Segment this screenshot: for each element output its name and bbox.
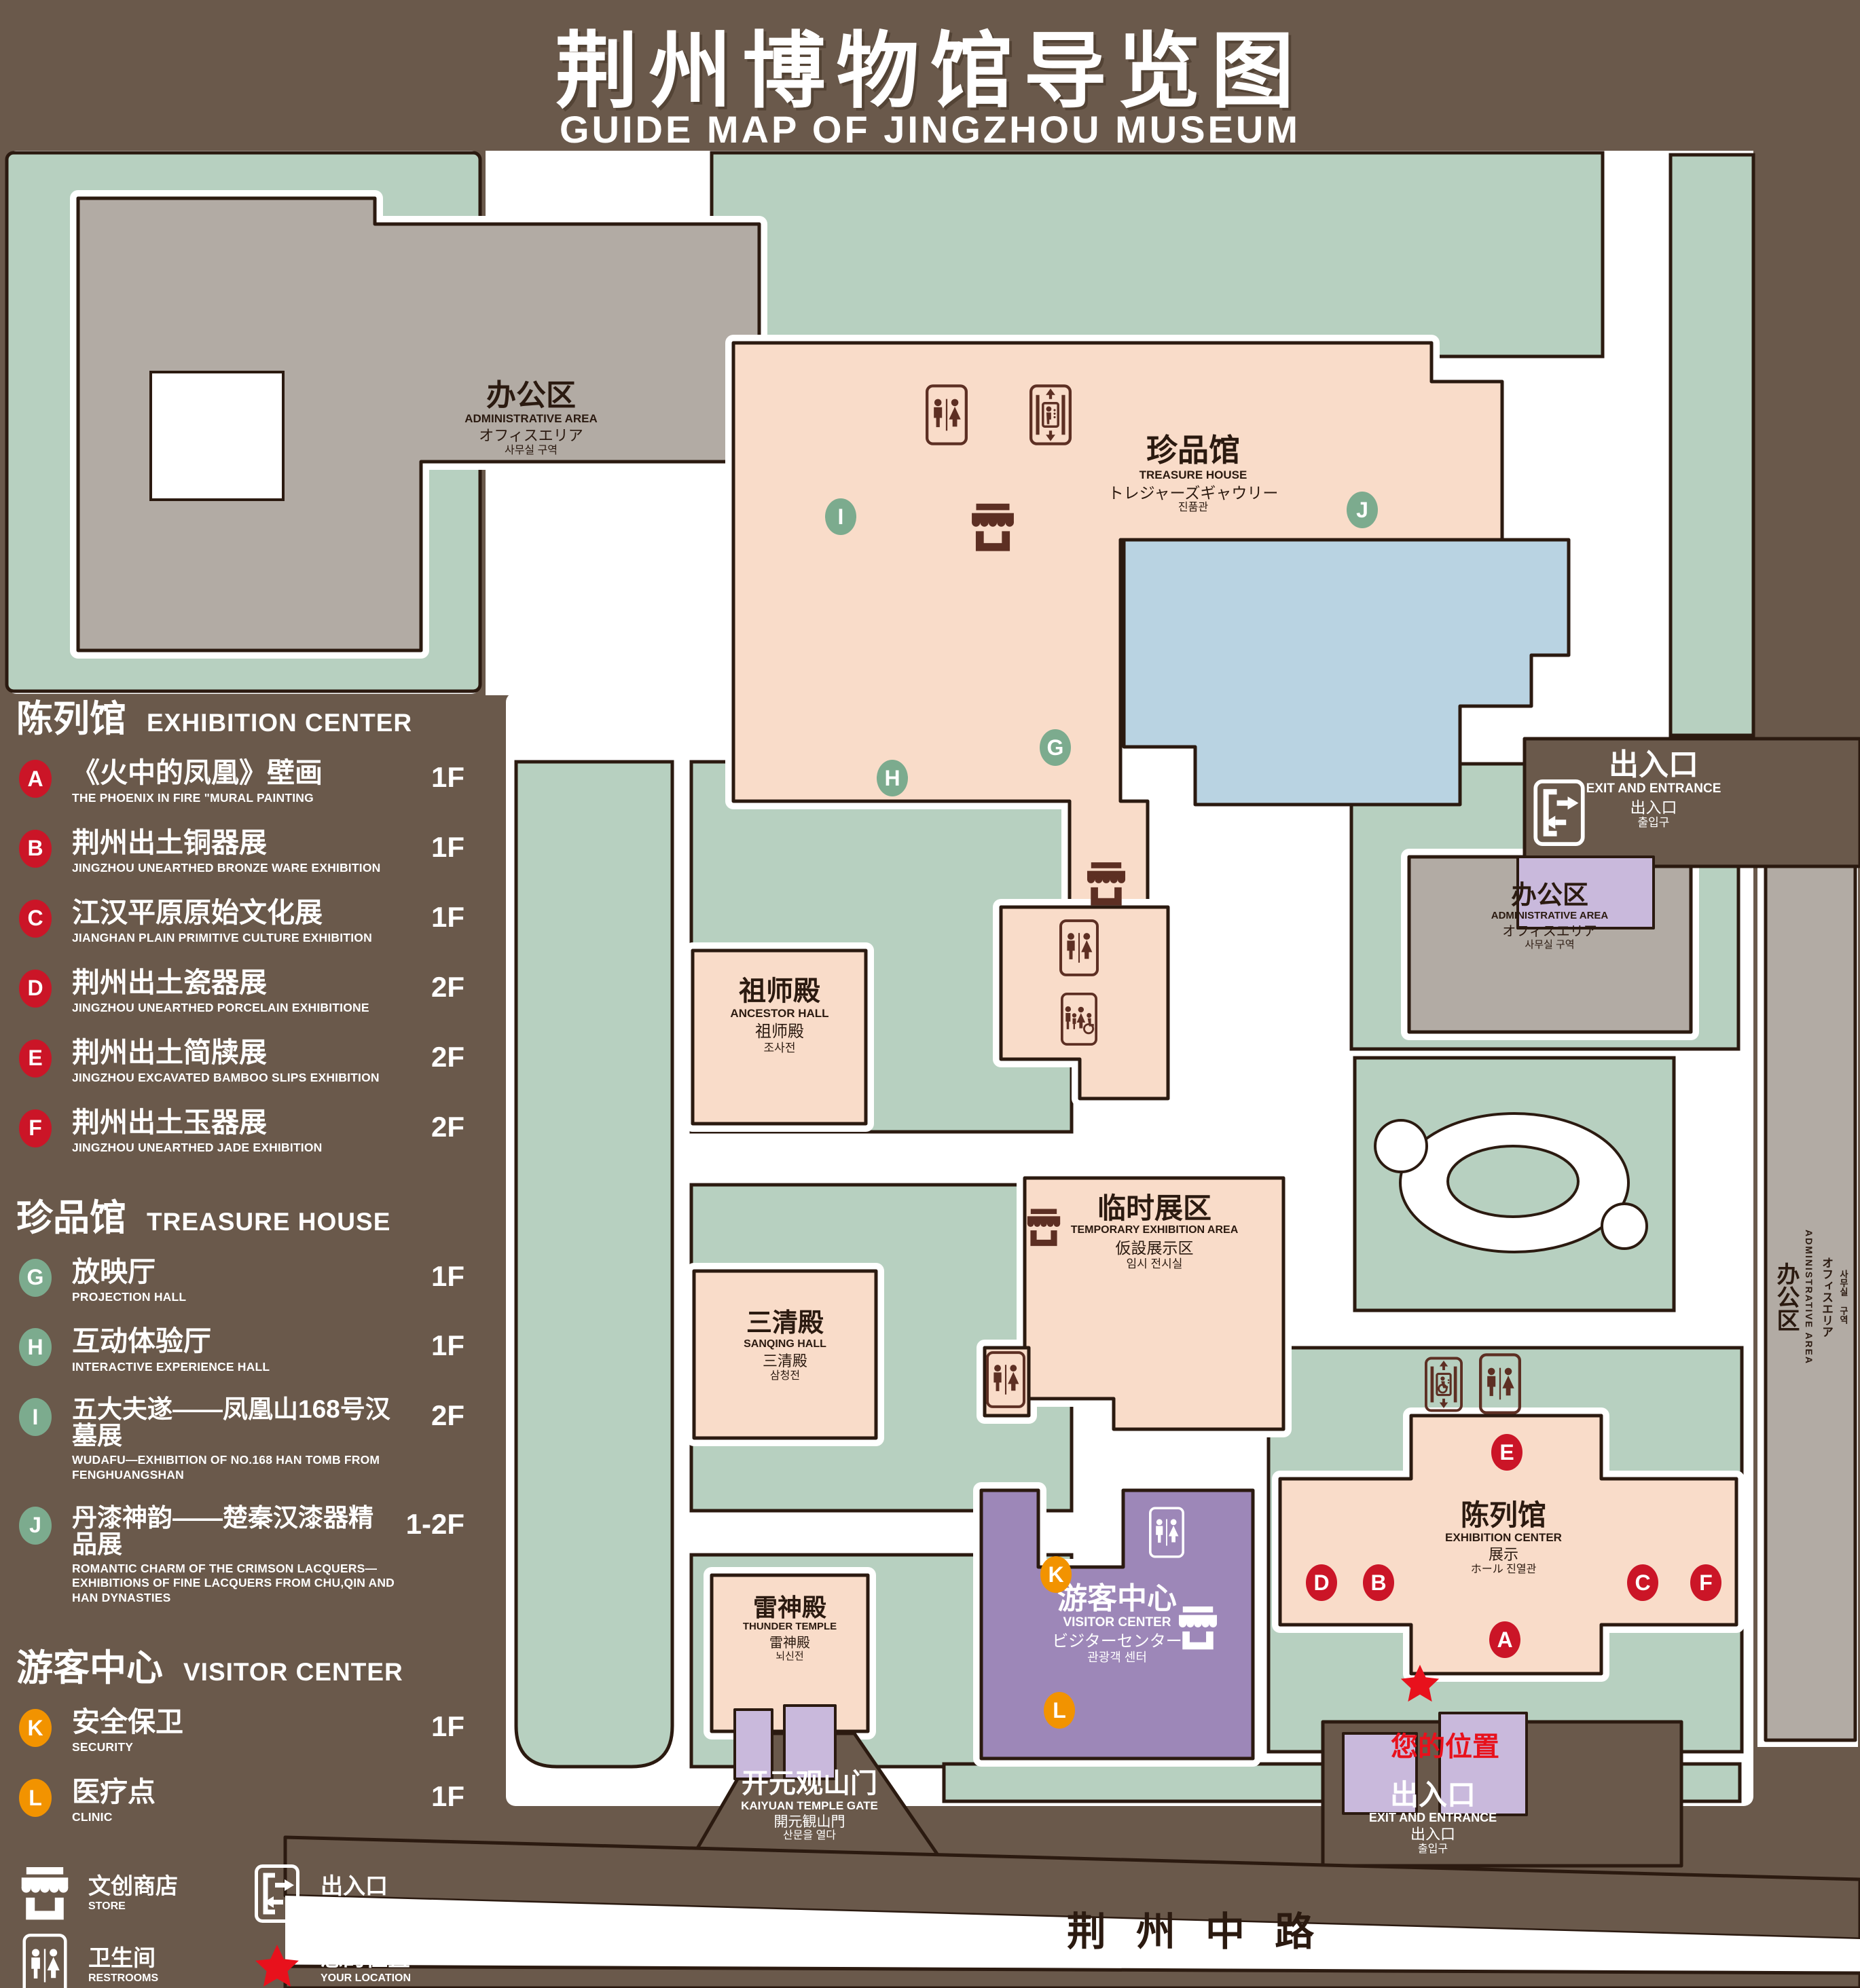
sym-en: STORE xyxy=(88,1900,178,1913)
item-zh: 《火中的凤凰》壁画 xyxy=(72,758,397,788)
legend-exit: 出入口 EXIT AND ENTRANCE xyxy=(249,1865,464,1922)
page-title: 荆州博物馆导览图 xyxy=(0,4,1860,124)
admin-left-label: 办公区 ADMINISTRATIVE AREA オフィスエリア 사무실 구역 xyxy=(464,379,598,457)
map-marker-d: D xyxy=(1306,1564,1337,1601)
item-floor: 2F xyxy=(431,1041,464,1073)
admin-left-courtyard xyxy=(151,372,283,500)
item-floor: 1F xyxy=(431,831,464,864)
item-zh: 荆州出土瓷器展 xyxy=(72,968,397,997)
item-zh: 医疗点 xyxy=(72,1778,397,1807)
central-restroom-icon xyxy=(1059,918,1099,981)
section-title-en: EXHIBITION CENTER xyxy=(147,709,412,737)
section-title-zh: 游客中心 xyxy=(16,1638,163,1691)
lawn-topright-strip xyxy=(1671,155,1753,735)
exhibition-restroom-icon xyxy=(1479,1352,1521,1418)
marker-f: F xyxy=(19,1109,52,1147)
marker-k: K xyxy=(19,1709,52,1747)
legend-store: 文创商店 STORE xyxy=(16,1865,232,1922)
legend-item-l: L 医疗点 CLINIC 1F xyxy=(16,1778,464,1825)
visitor-center-label: 游客中心 VISITOR CENTER ビジターセンター 관광객 센터 xyxy=(1052,1582,1182,1665)
map-marker-l: L xyxy=(1044,1692,1075,1729)
legend-item-i: I 五大夫遂——凤凰山168号汉墓展 WUDAFU—EXHIBITION OF … xyxy=(16,1397,464,1482)
marker-b: B xyxy=(19,830,52,868)
sym-zh: 文创商店 xyxy=(88,1875,178,1898)
legend-restrooms: 卫生间 RESTROOMS xyxy=(16,1937,232,1988)
kaiyuan-gate-label: 开元观山门 KAIYUAN TEMPLE GATE 開元観山門 산문을 열다 xyxy=(741,1769,878,1842)
road-name: 荆 州 中 路 xyxy=(1067,1900,1324,1957)
admin-right-label: 办公区 ADMINISTRATIVE AREA オフィスエリア 사무실 구역 xyxy=(1491,881,1609,951)
treasure-restroom-icon xyxy=(926,384,968,449)
treasure-house-label: 珍品馆 TREASURE HOUSE トレジャーズギャウリー 진품관 xyxy=(1108,433,1279,514)
legend-section-treasure-house: 珍品馆 TREASURE HOUSE xyxy=(16,1188,464,1241)
item-floor: 1F xyxy=(431,1260,464,1293)
item-en: PROJECTION HALL xyxy=(72,1290,397,1305)
map-marker-j: J xyxy=(1347,492,1378,528)
guide-map-poster: 荆州博物馆导览图 GUIDE MAP OF JINGZHOU MUSEUM 陈列… xyxy=(0,0,1860,1988)
sym-zh: 卫生间 xyxy=(88,1947,158,1970)
item-floor: 1F xyxy=(431,1780,464,1813)
map-marker-i: I xyxy=(825,498,856,535)
exhibition-center-label: 陈列馆 EXHIBITION CENTER 展示 ホール 진열관 xyxy=(1445,1499,1562,1576)
lawn-bottom-strip-right xyxy=(1677,1764,1740,1801)
your-location-star-icon xyxy=(1400,1663,1440,1706)
map-marker-f: F xyxy=(1690,1564,1721,1601)
central-family-restroom-icon xyxy=(1061,991,1097,1050)
restroom-icon xyxy=(16,1937,73,1988)
legend-item-e: E 荆州出土简牍展 JINGZHOU EXCAVATED BAMBOO SLIP… xyxy=(16,1038,464,1086)
legend-item-c: C 江汉平原原始文化展 JIANGHAN PLAIN PRIMITIVE CUL… xyxy=(16,898,464,946)
marker-a: A xyxy=(19,760,52,798)
marker-c: C xyxy=(19,900,52,938)
exit-right-icon xyxy=(1533,779,1585,849)
item-en: JINGZHOU UNEARTHED BRONZE WARE EXHIBITIO… xyxy=(72,861,397,876)
section-title-zh: 陈列馆 xyxy=(16,688,126,742)
item-en: CLINIC xyxy=(72,1810,397,1825)
page-subtitle: GUIDE MAP OF JINGZHOU MUSEUM xyxy=(0,107,1860,151)
treasure-elevator-icon xyxy=(1029,384,1072,449)
garden-island xyxy=(1448,1146,1578,1217)
sym-en: EXIT AND ENTRANCE xyxy=(321,1900,434,1913)
item-zh: 五大夫遂——凤凰山168号汉墓展 xyxy=(72,1397,397,1450)
legend-item-h: H 互动体验厅 INTERACTIVE EXPERIENCE HALL 1F xyxy=(16,1327,464,1374)
legend-item-g: G 放映厅 PROJECTION HALL 1F xyxy=(16,1257,464,1305)
item-floor: 1-2F xyxy=(406,1508,464,1541)
map-marker-g: G xyxy=(1040,729,1071,766)
kaiyuan-gate-door-right xyxy=(784,1706,835,1779)
item-en: WUDAFU—EXHIBITION OF NO.168 HAN TOMB FRO… xyxy=(72,1453,397,1483)
item-floor: 1F xyxy=(431,901,464,934)
item-zh: 放映厅 xyxy=(72,1257,397,1287)
exit-bottom-label: 出入口 EXIT AND ENTRANCE 出入口 출입구 xyxy=(1369,1779,1497,1856)
lawn-left-column xyxy=(516,762,672,1767)
item-en: ROMANTIC CHARM OF THE CRIMSON LACQUERS—E… xyxy=(72,1562,397,1606)
exit-right-label: 出入口 EXIT AND ENTRANCE 出入口 출입구 xyxy=(1586,748,1721,829)
temporary-restroom-icon xyxy=(986,1350,1025,1413)
legend-item-j: J 丹漆神韵——楚秦汉漆器精品展 ROMANTIC CHARM OF THE C… xyxy=(16,1505,464,1606)
visitor-restroom-icon xyxy=(1149,1506,1184,1562)
item-floor: 2F xyxy=(431,1399,464,1432)
sym-en: RESTROOMS xyxy=(88,1972,158,1985)
legend-item-f: F 荆州出土玉器展 JINGZHOU UNEARTHED JADE EXHIBI… xyxy=(16,1108,464,1156)
temporary-store-icon xyxy=(1027,1200,1061,1258)
section-title-zh: 珍品馆 xyxy=(16,1188,126,1241)
your-location-label: 您的位置 xyxy=(1391,1725,1499,1764)
thunder-temple-label: 雷神殿 THUNDER TEMPLE 雷神殿 뇌신전 xyxy=(743,1594,837,1662)
lawn-bottom-strip xyxy=(944,1764,1324,1801)
item-zh: 荆州出土铜器展 xyxy=(72,828,397,858)
map-marker-c: C xyxy=(1627,1564,1658,1601)
item-en: JINGZHOU EXCAVATED BAMBOO SLIPS EXHIBITI… xyxy=(72,1071,397,1086)
map-marker-b: B xyxy=(1363,1564,1394,1601)
legend-your-location: 您的位置 YOUR LOCATION xyxy=(249,1937,464,1988)
treasure-store-icon xyxy=(971,494,1015,564)
item-en: JINGZHOU UNEARTHED PORCELAIN EXHIBITIONE xyxy=(72,1001,397,1016)
item-en: INTERACTIVE EXPERIENCE HALL xyxy=(72,1360,397,1375)
marker-g: G xyxy=(19,1259,52,1297)
sym-en: YOUR LOCATION xyxy=(321,1972,411,1985)
temporary-exhibition-label: 临时展区 TEMPORARY EXHIBITION AREA 仮設展示区 임시 … xyxy=(1071,1192,1239,1270)
lawn-top xyxy=(712,153,1603,356)
map-marker-a: A xyxy=(1489,1621,1520,1658)
legend-section-visitor-center: 游客中心 VISITOR CENTER xyxy=(16,1638,464,1691)
treasure-store-icon-2 xyxy=(1087,853,1126,919)
sanqing-hall-label: 三清殿 SANQING HALL 三清殿 삼청전 xyxy=(744,1309,826,1382)
garden-path-node xyxy=(1375,1120,1427,1172)
ancestor-hall-label: 祖师殿 ANCESTOR HALL 祖师殿 조사전 xyxy=(730,976,828,1054)
item-floor: 1F xyxy=(431,1329,464,1362)
exit-icon xyxy=(249,1865,306,1922)
item-en: JINGZHOU UNEARTHED JADE EXHIBITION xyxy=(72,1141,397,1156)
map-marker-h: H xyxy=(877,760,908,796)
store-icon xyxy=(16,1865,73,1922)
location-star-icon xyxy=(249,1937,306,1988)
legend-item-b: B 荆州出土铜器展 JINGZHOU UNEARTHED BRONZE WARE… xyxy=(16,828,464,876)
admin-strip-label: 办公区 ADMINISTRATIVE AREA オフィスエリア 사무실 구역 xyxy=(1767,1018,1855,1575)
legend-item-k: K 安全保卫 SECURITY 1F xyxy=(16,1708,464,1755)
sym-zh: 出入口 xyxy=(321,1875,434,1898)
item-zh: 江汉平原原始文化展 xyxy=(72,898,397,927)
item-zh: 荆州出土简牍展 xyxy=(72,1038,397,1067)
visitor-store-icon xyxy=(1178,1597,1218,1663)
legend-item-d: D 荆州出土瓷器展 JINGZHOU UNEARTHED PORCELAIN E… xyxy=(16,968,464,1016)
legend-symbols: 文创商店 STORE 卫生间 RESTROOMS 家庭卫生间 FAMILY RE… xyxy=(16,1865,464,1988)
sym-zh: 您的位置 xyxy=(321,1947,411,1970)
item-en: SECURITY xyxy=(72,1740,397,1755)
section-title-en: VISITOR CENTER xyxy=(183,1658,403,1687)
legend-section-exhibition-center: 陈列馆 EXHIBITION CENTER xyxy=(16,688,464,742)
map-marker-e: E xyxy=(1491,1434,1522,1471)
marker-l: L xyxy=(19,1779,52,1817)
marker-j: J xyxy=(19,1507,52,1545)
marker-h: H xyxy=(19,1328,52,1366)
item-zh: 安全保卫 xyxy=(72,1708,397,1737)
item-floor: 1F xyxy=(431,1710,464,1743)
marker-d: D xyxy=(19,970,52,1008)
section-title-en: TREASURE HOUSE xyxy=(147,1208,390,1236)
item-floor: 2F xyxy=(431,1111,464,1143)
exhibition-accessible-elevator-icon xyxy=(1425,1355,1463,1417)
legend-panel: 陈列馆 EXHIBITION CENTER A 《火中的凤凰》壁画 THE PH… xyxy=(16,679,464,1988)
item-en: THE PHOENIX IN FIRE "MURAL PAINTING xyxy=(72,791,397,806)
garden-path-node2 xyxy=(1602,1204,1647,1249)
legend-item-a: A 《火中的凤凰》壁画 THE PHOENIX IN FIRE "MURAL P… xyxy=(16,758,464,806)
item-zh: 荆州出土玉器展 xyxy=(72,1108,397,1137)
item-zh: 互动体验厅 xyxy=(72,1327,397,1356)
map-marker-k: K xyxy=(1040,1556,1072,1593)
marker-i: I xyxy=(19,1398,52,1436)
item-zh: 丹漆神韵——楚秦汉漆器精品展 xyxy=(72,1505,397,1558)
item-en: JIANGHAN PLAIN PRIMITIVE CULTURE EXHIBIT… xyxy=(72,931,397,946)
item-floor: 1F xyxy=(431,761,464,794)
marker-e: E xyxy=(19,1039,52,1078)
item-floor: 2F xyxy=(431,971,464,1004)
